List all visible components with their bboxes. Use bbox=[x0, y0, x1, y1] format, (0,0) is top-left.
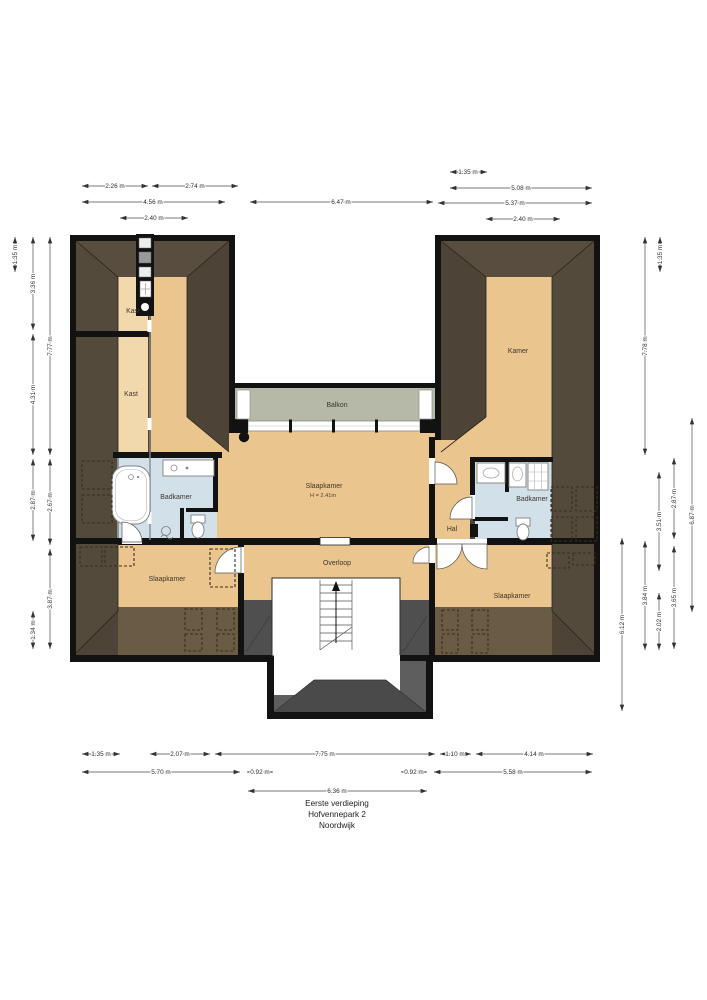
dimension: 6.47 m bbox=[250, 199, 433, 206]
dimension: 7.78 m bbox=[642, 237, 649, 455]
dimension: 7.75 m bbox=[215, 751, 435, 758]
svg-text:2.87 m: 2.87 m bbox=[30, 490, 37, 510]
flue-shaft bbox=[136, 234, 154, 316]
room-label-hal: Hal bbox=[447, 526, 458, 533]
doorway-marker bbox=[320, 538, 350, 546]
balcony-door-right bbox=[419, 390, 432, 419]
svg-text:5.08 m: 5.08 m bbox=[511, 185, 531, 192]
floorplan-page: Kast Kast Badkamer Slaapkamer H = 2.41m … bbox=[0, 0, 707, 1000]
shower-right bbox=[528, 463, 548, 490]
dimension: 3.36 m bbox=[30, 237, 37, 330]
svg-text:2.87 m: 2.87 m bbox=[671, 489, 678, 509]
svg-text:1.10 m: 1.10 m bbox=[445, 751, 465, 758]
room-label-height-note: H = 2.41m bbox=[310, 493, 336, 499]
toilet-right bbox=[516, 518, 530, 540]
svg-text:2.26 m: 2.26 m bbox=[105, 183, 125, 190]
dimensions-top: 2.26 m 2.74 m 4.56 m 2.40 m 6.47 m 1.35 … bbox=[82, 169, 592, 223]
dimension: 2.67 m bbox=[47, 459, 54, 545]
svg-text:3.36 m: 3.36 m bbox=[30, 274, 37, 294]
dimension: 4.56 m bbox=[82, 199, 225, 206]
svg-text:0.92 m: 0.92 m bbox=[250, 769, 270, 776]
svg-text:3.84 m: 3.84 m bbox=[642, 586, 649, 606]
radiator bbox=[470, 524, 478, 537]
dimension: 6.12 m bbox=[619, 538, 626, 711]
dimension: 0.92 m bbox=[401, 769, 427, 776]
dimension: 2.02 m bbox=[656, 593, 663, 650]
room-label-balkon: Balkon bbox=[326, 402, 347, 409]
svg-text:2.02 m: 2.02 m bbox=[656, 612, 663, 632]
title-floor: Eerste verdieping bbox=[305, 799, 369, 808]
svg-text:5.70 m: 5.70 m bbox=[151, 769, 171, 776]
svg-text:1.34 m: 1.34 m bbox=[30, 620, 37, 640]
room-label-slaapkamer-right: Slaapkamer bbox=[494, 593, 531, 600]
toilet-left bbox=[191, 515, 205, 538]
svg-text:1.35 m: 1.35 m bbox=[657, 245, 664, 265]
dimension: 3.84 m bbox=[642, 541, 649, 650]
dimension: 1.35 m bbox=[12, 237, 19, 272]
svg-text:5.58 m: 5.58 m bbox=[503, 769, 523, 776]
svg-text:5.37 m: 5.37 m bbox=[505, 200, 525, 207]
room-label-kast-lower: Kast bbox=[124, 391, 138, 398]
dimensions-left: 1.35 m 3.36 m 4.31 m 2.87 m 1.34 m 7.77 … bbox=[12, 237, 54, 649]
title-city: Noordwijk bbox=[319, 821, 356, 830]
room-label-badkamer-left: Badkamer bbox=[160, 494, 192, 501]
dimension: 6.36 m bbox=[248, 788, 427, 795]
room-label-overloop: Overloop bbox=[323, 560, 351, 567]
dimension: 6.87 m bbox=[689, 418, 696, 612]
svg-text:1.35 m: 1.35 m bbox=[12, 245, 19, 265]
dimension: 4.31 m bbox=[30, 334, 37, 455]
svg-text:2.40 m: 2.40 m bbox=[513, 216, 533, 223]
floorplan-canvas: Kast Kast Badkamer Slaapkamer H = 2.41m … bbox=[0, 0, 707, 1000]
dimension: 3.65 m bbox=[671, 546, 678, 649]
balcony-door-left bbox=[237, 390, 250, 419]
room-label-kamer: Kamer bbox=[508, 348, 529, 355]
svg-text:6.87 m: 6.87 m bbox=[689, 505, 696, 525]
dimension: 1.35 m bbox=[82, 751, 120, 758]
dimension: 1.10 m bbox=[440, 751, 471, 758]
svg-text:6.47 m: 6.47 m bbox=[331, 199, 351, 206]
column bbox=[239, 432, 249, 442]
svg-text:3.65 m: 3.65 m bbox=[671, 588, 678, 608]
svg-text:1.35 m: 1.35 m bbox=[91, 751, 111, 758]
dimension: 5.70 m bbox=[82, 769, 240, 776]
dimension: 1.35 m bbox=[657, 237, 664, 272]
vanity-left bbox=[163, 460, 214, 476]
svg-text:4.14 m: 4.14 m bbox=[524, 751, 544, 758]
room-label-slaapkamer-left: Slaapkamer bbox=[149, 576, 186, 583]
toilet-right-upper bbox=[509, 463, 526, 487]
svg-text:1.35 m: 1.35 m bbox=[458, 169, 478, 176]
svg-text:2.74 m: 2.74 m bbox=[185, 183, 205, 190]
dimension: 5.08 m bbox=[450, 185, 592, 192]
svg-text:6.36 m: 6.36 m bbox=[327, 788, 347, 795]
svg-text:2.67 m: 2.67 m bbox=[47, 492, 54, 512]
dimension: 3.51 m bbox=[656, 472, 663, 571]
svg-text:4.31 m: 4.31 m bbox=[30, 385, 37, 405]
dimensions-bottom: 1.35 m 2.07 m 7.75 m 1.10 m 4.14 m 5.70 … bbox=[82, 751, 593, 795]
svg-text:2.07 m: 2.07 m bbox=[170, 751, 190, 758]
room-label-slaapkamer-center: Slaapkamer bbox=[306, 483, 343, 490]
dimension: 7.77 m bbox=[47, 237, 54, 455]
title-block: Eerste verdieping Hofvennepark 2 Noordwi… bbox=[305, 799, 369, 830]
svg-text:7.75 m: 7.75 m bbox=[315, 751, 335, 758]
svg-text:4.56 m: 4.56 m bbox=[143, 199, 163, 206]
svg-text:3.87 m: 3.87 m bbox=[47, 589, 54, 609]
svg-text:6.12 m: 6.12 m bbox=[619, 615, 626, 635]
dimension: 3.87 m bbox=[47, 549, 54, 649]
svg-text:7.77 m: 7.77 m bbox=[47, 336, 54, 356]
dimension: 1.35 m bbox=[450, 169, 487, 176]
dimension: 0.92 m bbox=[247, 769, 273, 776]
room-label-kast-upper: Kast bbox=[126, 308, 140, 315]
dimension: 2.87 m bbox=[30, 459, 37, 541]
dimension: 2.74 m bbox=[152, 183, 238, 190]
dimension: 5.58 m bbox=[434, 769, 592, 776]
dimension: 1.34 m bbox=[30, 611, 37, 649]
dimension: 5.37 m bbox=[438, 200, 592, 207]
title-street: Hofvennepark 2 bbox=[308, 810, 366, 819]
room-label-badkamer-right: Badkamer bbox=[516, 496, 548, 503]
svg-text:3.51 m: 3.51 m bbox=[656, 512, 663, 532]
dimensions-right: 7.78 m 1.35 m 3.51 m 2.02 m 2.87 m 3.65 … bbox=[619, 237, 696, 711]
dimension: 4.14 m bbox=[476, 751, 593, 758]
bathtub bbox=[112, 466, 150, 524]
dimension: 2.40 m bbox=[486, 216, 560, 223]
dimension: 2.07 m bbox=[150, 751, 210, 758]
svg-text:7.78 m: 7.78 m bbox=[642, 336, 649, 356]
dimension: 2.87 m bbox=[671, 458, 678, 539]
svg-text:2.40 m: 2.40 m bbox=[144, 215, 164, 222]
dimension: 2.40 m bbox=[120, 215, 188, 222]
dimension: 2.26 m bbox=[82, 183, 148, 190]
vanity-right bbox=[477, 463, 505, 483]
svg-text:0.92 m: 0.92 m bbox=[404, 769, 424, 776]
